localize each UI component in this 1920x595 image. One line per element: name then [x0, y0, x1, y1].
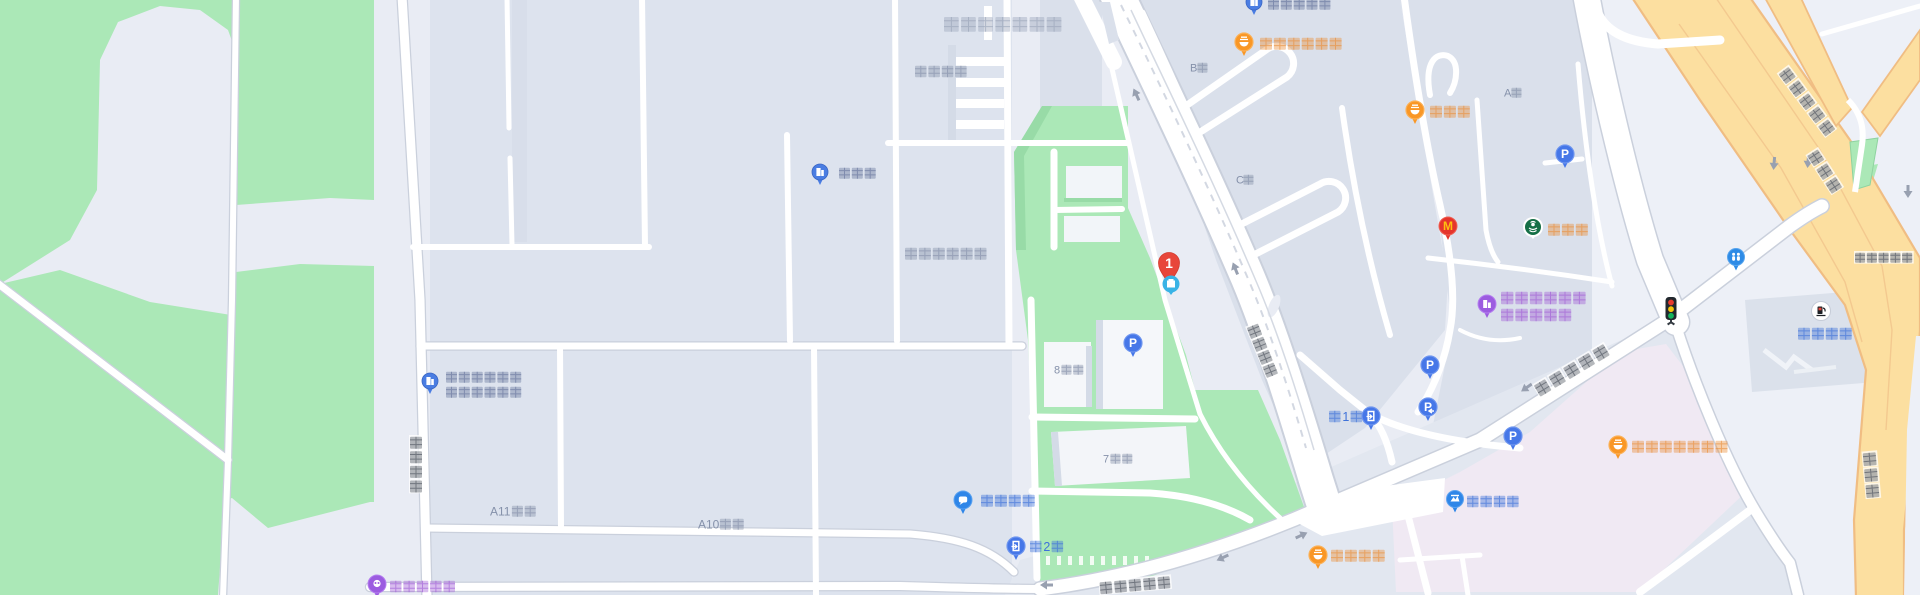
- svg-text:P: P: [1426, 358, 1434, 372]
- svg-text:B: B: [1190, 63, 1197, 75]
- svg-text:2: 2: [1043, 540, 1050, 554]
- svg-text:P: P: [1129, 336, 1137, 350]
- svg-text:C: C: [1236, 175, 1244, 187]
- svg-text:1: 1: [1165, 255, 1173, 271]
- svg-text:A10: A10: [698, 517, 720, 531]
- svg-text:M: M: [1443, 219, 1453, 233]
- svg-text:P: P: [1509, 429, 1517, 443]
- svg-text:8: 8: [1054, 365, 1060, 377]
- svg-text:1: 1: [1342, 410, 1349, 424]
- svg-text:A: A: [1504, 88, 1512, 100]
- svg-text:7: 7: [1103, 454, 1109, 466]
- svg-text:P: P: [1561, 147, 1569, 161]
- svg-text:A11: A11: [490, 504, 511, 518]
